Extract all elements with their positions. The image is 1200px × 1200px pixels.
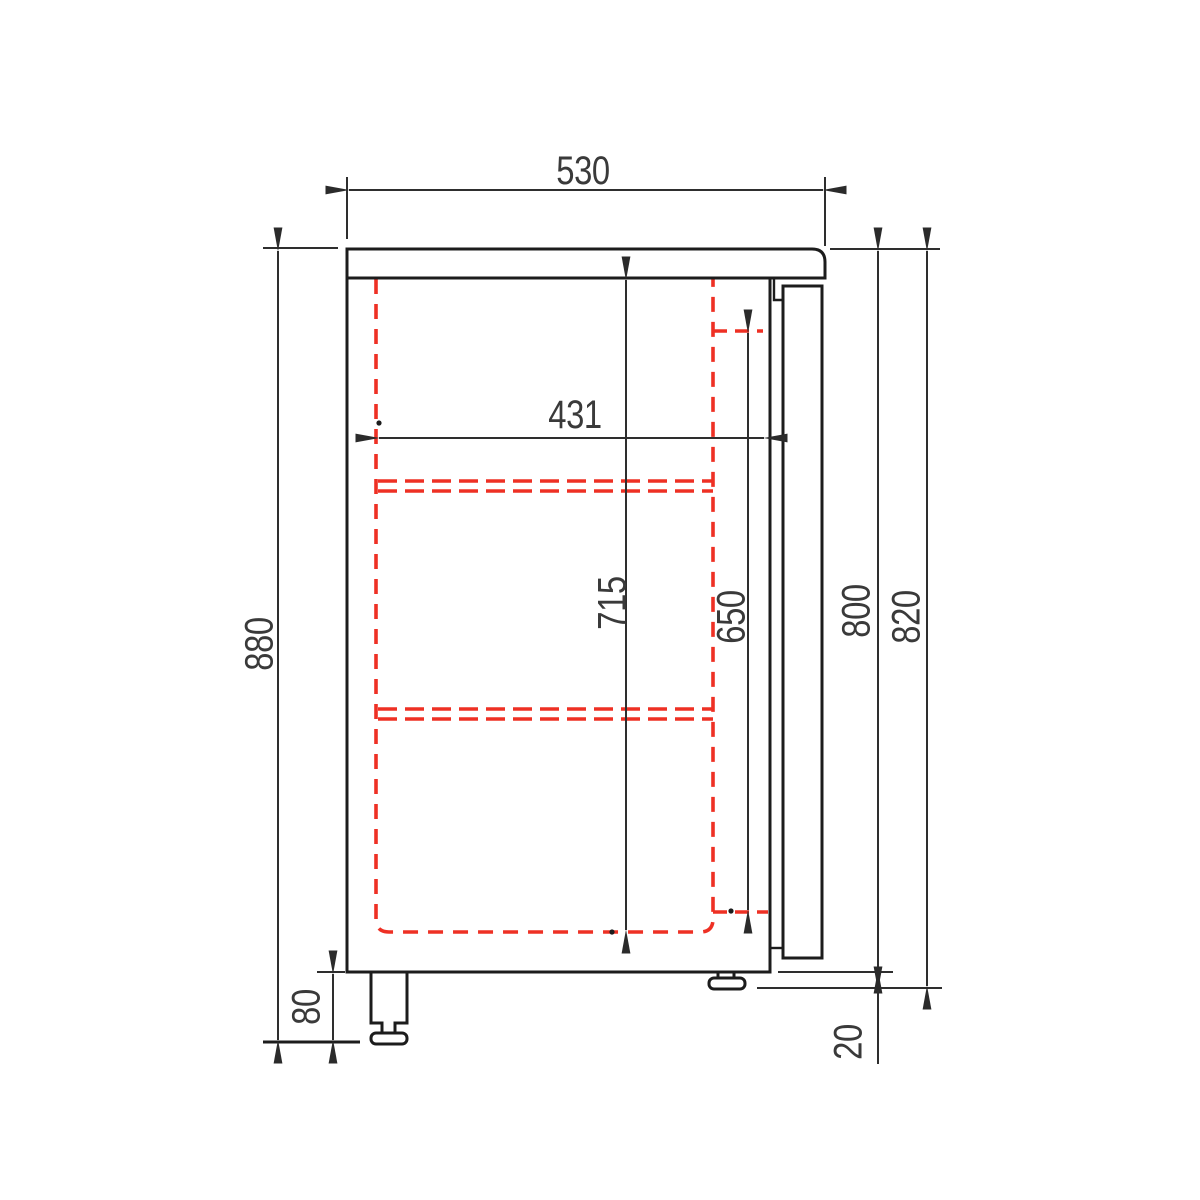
- dim-label-interior-depth: 431: [548, 392, 601, 437]
- technical-drawing-canvas: 530 431 715 650 800 820 880 80 20: [0, 0, 1200, 1200]
- dim-label-worktop-depth: 530: [556, 148, 609, 193]
- dim-label-body-door-height: 820: [884, 590, 929, 643]
- dim-label-overall-height: 880: [237, 617, 282, 670]
- dim-origin-dot-650: [728, 908, 733, 913]
- side-view-drawing: 530 431 715 650 800 820 880 80 20: [0, 0, 1200, 1200]
- dim-label-liner-height: 650: [709, 590, 754, 643]
- dim-label-door-overhang: 20: [826, 1024, 871, 1060]
- dim-label-foot-height: 80: [284, 989, 329, 1025]
- dim-origin-dot-715: [609, 929, 614, 934]
- dim-label-body-height: 800: [834, 584, 879, 637]
- dim-label-interior-height: 715: [590, 576, 635, 629]
- dim-origin-dot-431: [376, 420, 381, 425]
